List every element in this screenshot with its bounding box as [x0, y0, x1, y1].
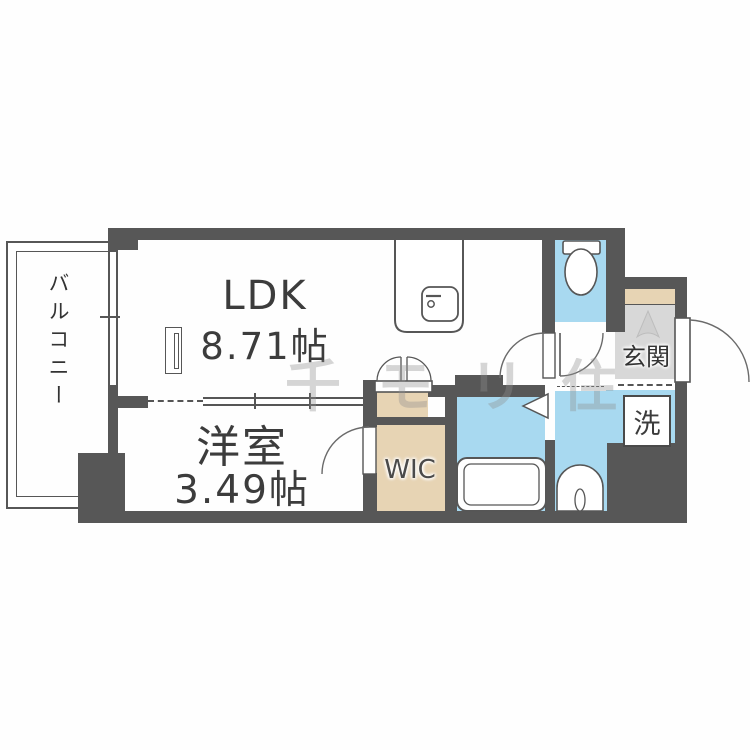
entrance-label: 玄関 — [617, 337, 675, 372]
bedroom-size-label: 3.49帖 — [152, 459, 332, 515]
toilet-door-arc — [560, 333, 603, 376]
balcony-label: バルコニー — [43, 272, 73, 467]
entrance-door-leaf — [675, 318, 690, 382]
ldk-size-label: 8.71帖 — [175, 316, 355, 370]
balcony-name: バルコニー — [46, 272, 70, 412]
washbasin-pedestal — [575, 489, 585, 511]
bath-folding-door — [523, 394, 548, 418]
floorplan-canvas: LDK 8.71帖 洋室 3.49帖 バルコニー WIC 玄関 洗 千モリ住 — [0, 0, 750, 750]
ldk-name: LDK — [222, 273, 307, 319]
wic-label: WIC — [375, 455, 445, 485]
closet-door-arc-right — [407, 357, 431, 381]
ldk-door-leaf — [543, 333, 555, 378]
entrance-fan-mark — [637, 311, 659, 337]
ldk-label: LDK — [175, 273, 355, 319]
ldk-size: 8.71帖 — [200, 325, 329, 368]
washing-machine-space: 洗 — [623, 395, 671, 447]
entrance-name: 玄関 — [622, 343, 670, 371]
closet-door-sill — [375, 381, 432, 392]
bathtub-outer — [457, 458, 546, 511]
entrance-door-arc — [690, 320, 749, 382]
laundry-name: 洗 — [634, 402, 661, 441]
ldk-door-arc — [500, 333, 545, 378]
kitchen-faucet-knob — [428, 301, 434, 307]
closet-door-arc-left — [377, 357, 401, 381]
wic-name: WIC — [384, 455, 436, 485]
toilet-bowl — [565, 249, 597, 295]
bedroom-size: 3.49帖 — [174, 468, 310, 513]
